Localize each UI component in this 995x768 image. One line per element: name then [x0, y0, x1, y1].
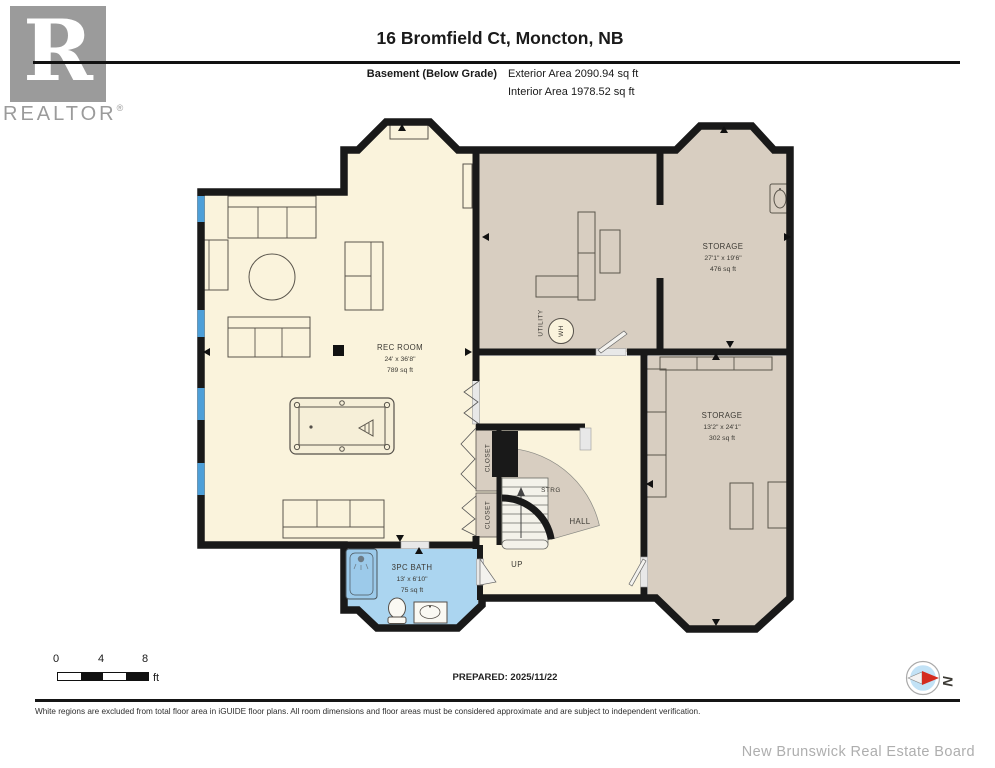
floorplan: WH UTILITY CLOSET CLOSET	[185, 105, 810, 665]
storage2-dim: 13'2" x 24'1"	[703, 424, 741, 431]
scale-unit: ft	[153, 672, 159, 684]
compass-north-letter: N	[940, 676, 956, 687]
wall-mass	[492, 431, 518, 477]
strg-label: STRG	[541, 487, 561, 494]
realtor-logo: R	[10, 6, 106, 102]
rec-room-area: 789 sq ft	[387, 367, 413, 374]
tv-marker	[333, 345, 344, 356]
scale-bar	[57, 672, 149, 681]
storage2-area: 302 sq ft	[709, 435, 735, 442]
toilet	[388, 598, 406, 624]
bath-dim: 13' x 6'10"	[396, 576, 428, 583]
registered-mark: ®	[117, 103, 127, 113]
scale-4: 4	[98, 653, 104, 665]
bath-area: 75 sq ft	[401, 587, 423, 594]
compass: N	[900, 655, 962, 701]
disclaimer-text: White regions are excluded from total fl…	[35, 707, 795, 716]
closet-2-label: CLOSET	[485, 501, 492, 530]
closet-1-label: CLOSET	[485, 444, 492, 473]
floor-label: Basement (Below Grade)	[260, 68, 497, 80]
storage1-dim: 27'1" x 19'6"	[704, 255, 742, 262]
scale-seg-1	[58, 673, 81, 680]
window-1	[198, 196, 205, 222]
window-4	[198, 463, 205, 495]
storage1-area: 476 sq ft	[710, 266, 736, 273]
pool-table	[290, 398, 394, 454]
hall-label: HALL	[569, 517, 590, 526]
rec-room-name: REC ROOM	[377, 343, 423, 352]
storage1-name: STORAGE	[703, 242, 744, 251]
scale-seg-2	[81, 673, 104, 680]
shower-head	[358, 556, 364, 562]
page-title: 16 Bromfield Ct, Moncton, NB	[200, 28, 800, 49]
scale-0: 0	[53, 653, 59, 665]
utility-storage-floor	[478, 126, 790, 352]
bath-passage-opening	[401, 542, 429, 549]
bath-sink	[414, 602, 447, 623]
room-floors	[201, 122, 790, 629]
scale-seg-4	[126, 673, 149, 680]
window-3	[198, 388, 205, 420]
footer-divider	[35, 699, 960, 702]
realtor-logo-r: R	[23, 9, 93, 93]
interior-area: Interior Area 1978.52 sq ft	[508, 86, 635, 98]
window-2	[198, 310, 205, 337]
scale-seg-3	[103, 673, 126, 680]
exterior-area: Exterior Area 2090.94 sq ft	[508, 68, 638, 80]
stair-landing	[502, 540, 548, 549]
storage2-floor	[648, 356, 790, 629]
prepared-date: PREPARED: 2025/11/22	[355, 672, 655, 683]
rec-room-dim: 24' x 36'8"	[384, 356, 416, 363]
up-label: UP	[511, 560, 523, 569]
wh-label: WH	[558, 325, 565, 337]
board-name: New Brunswick Real Estate Board	[575, 744, 975, 760]
storage2-name: STORAGE	[702, 411, 743, 420]
utility-label: UTILITY	[538, 309, 545, 337]
rec-room-floor	[201, 122, 478, 545]
header-divider	[33, 61, 960, 64]
realtor-wordmark: REALTOR®	[3, 103, 126, 126]
scale-8: 8	[142, 653, 148, 665]
bath-name: 3PC BATH	[392, 563, 433, 572]
strg-door-opening	[580, 428, 591, 450]
